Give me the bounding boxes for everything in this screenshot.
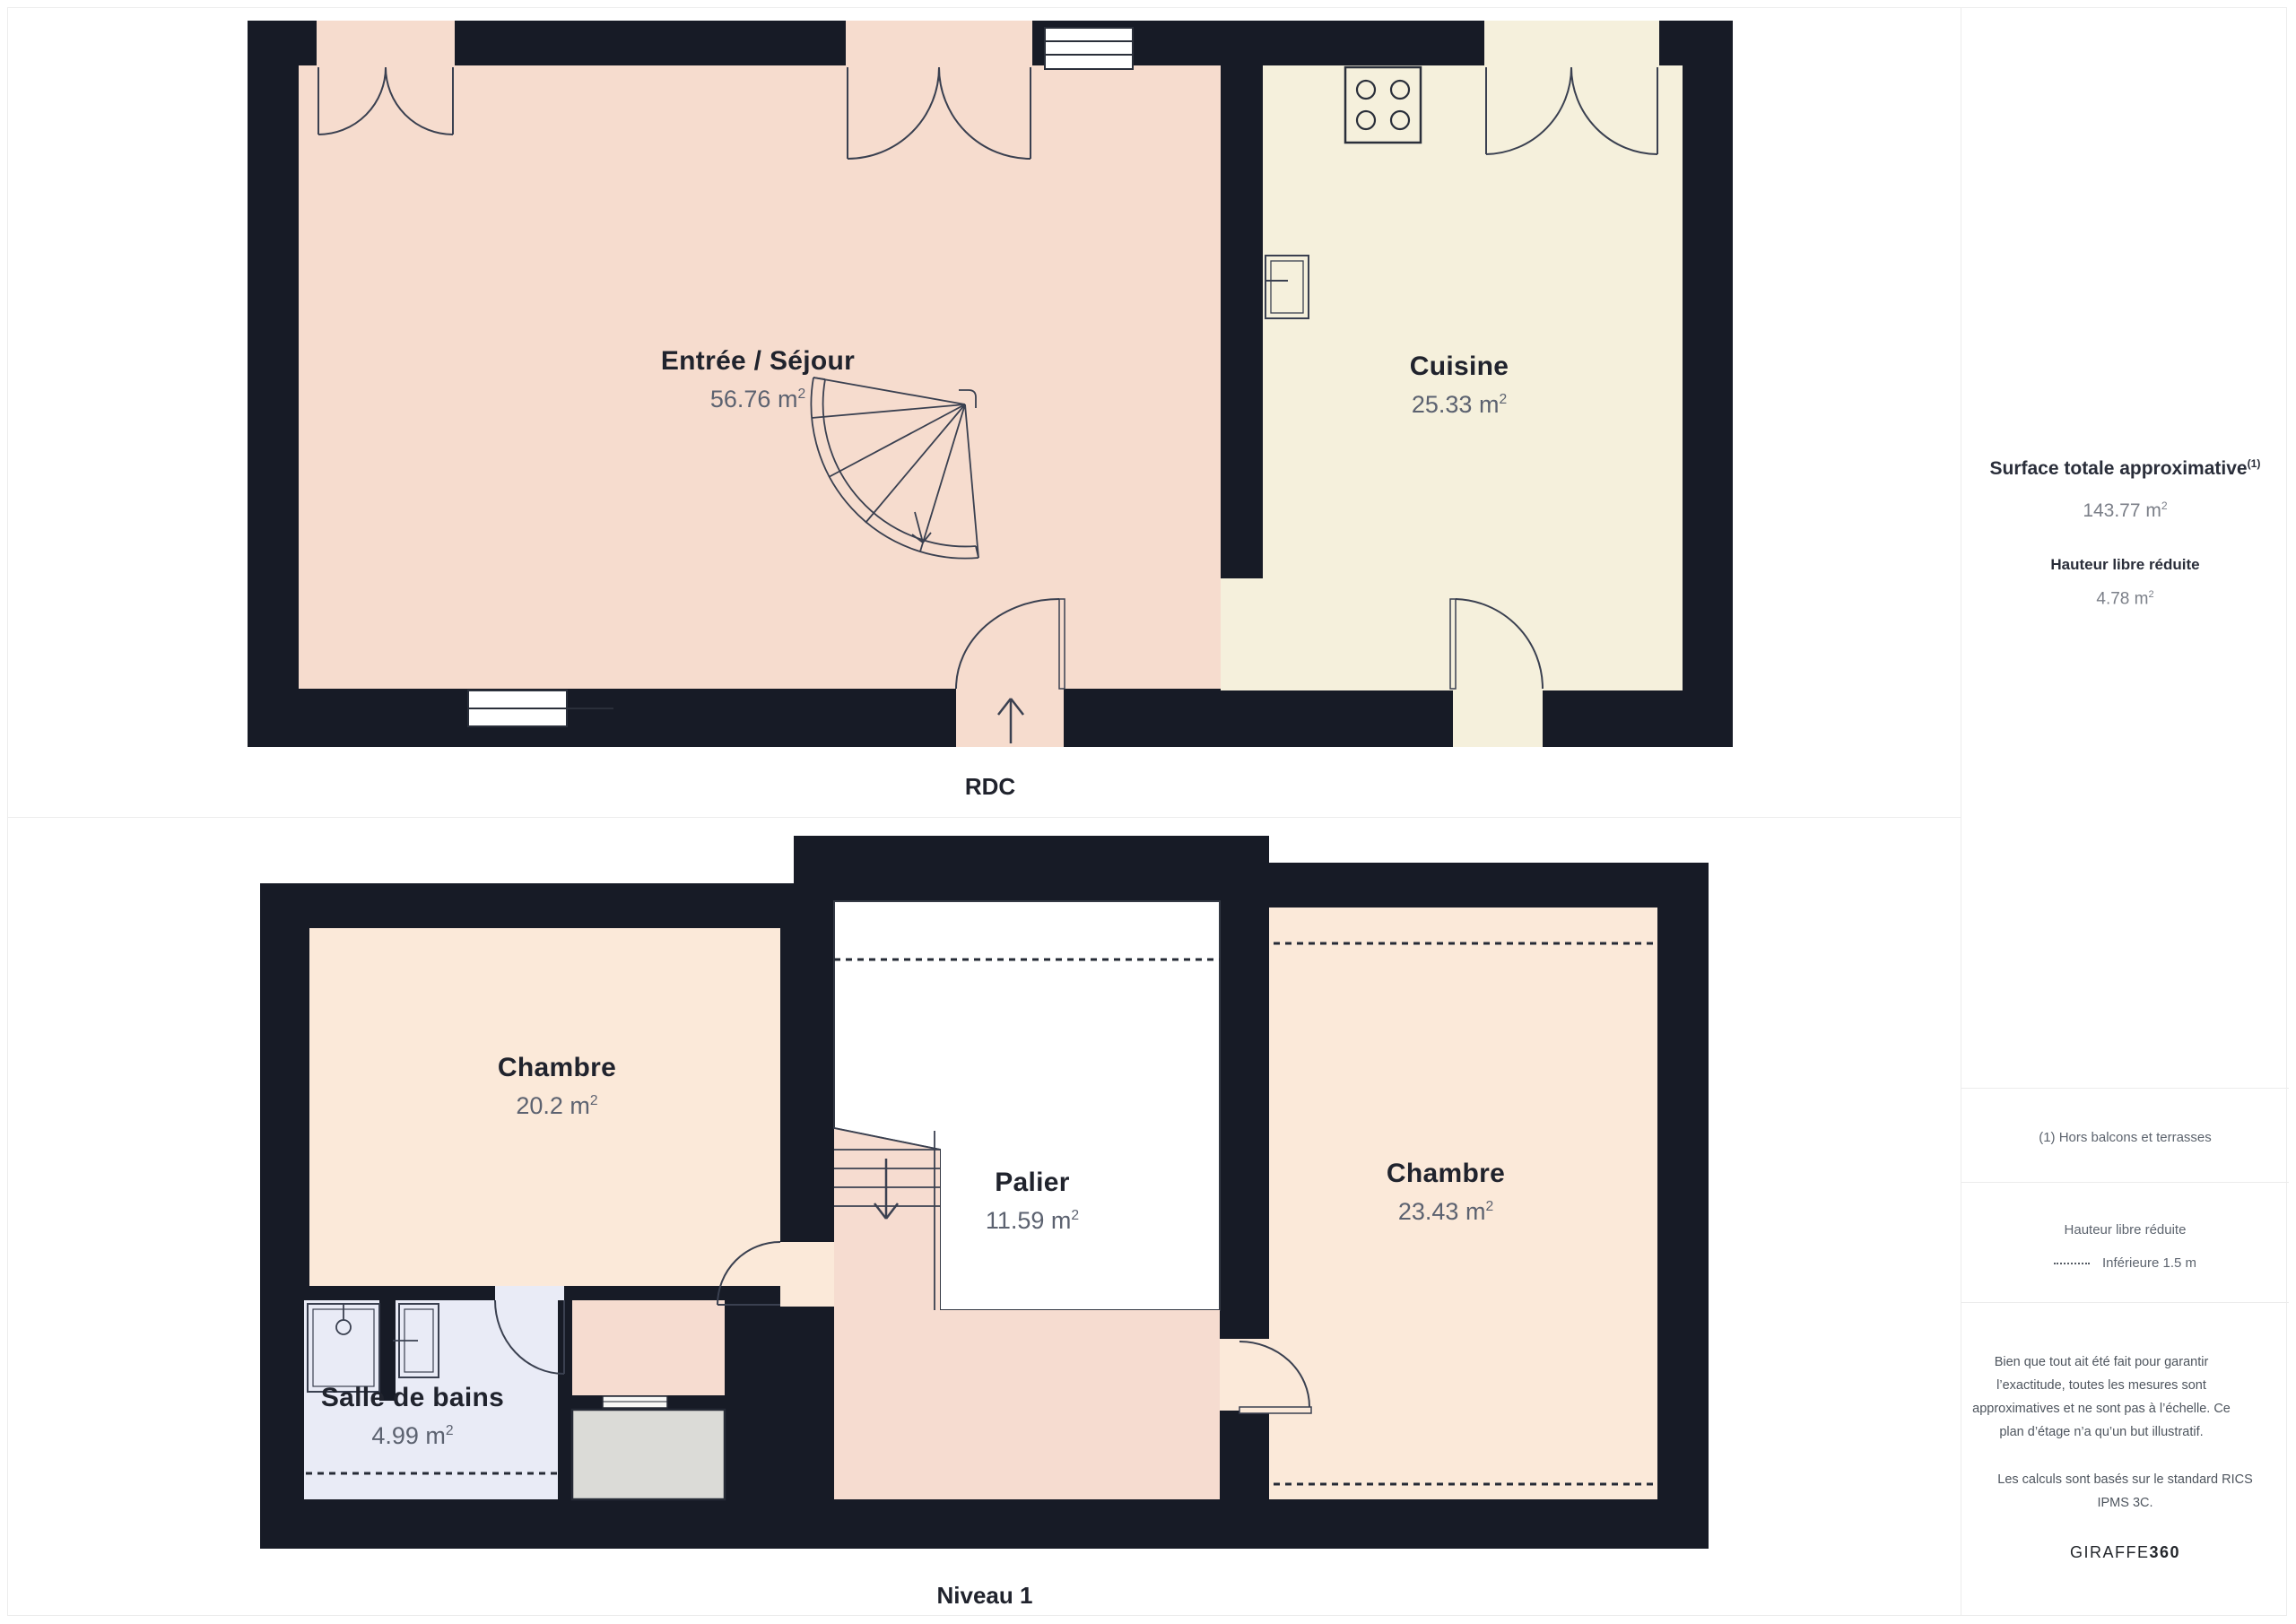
floors-divider — [7, 817, 1961, 818]
door-opening — [317, 21, 455, 67]
surface-total-block: Surface totale approximative(1) 143.77 m… — [1961, 457, 2289, 522]
room-chambre2-floor — [1269, 908, 1657, 1499]
legend-block: Hauteur libre réduite Inférieure 1.5 m — [1961, 1222, 2289, 1271]
door-opening — [1453, 689, 1543, 747]
sidebar-section-divider — [1961, 1088, 2289, 1089]
door-opening — [780, 1242, 834, 1307]
disclaimer-text: Bien que tout ait été fait pour garantir… — [1961, 1350, 2241, 1444]
standard-note-text: Les calculs sont basés sur le standard R… — [1986, 1468, 2266, 1515]
sidebar-section-divider — [1961, 1302, 2289, 1303]
floor-label-niveau1: Niveau 1 — [258, 1582, 1711, 1610]
floor-plan-rdc-drawing — [248, 21, 1733, 747]
room-palier-floor — [834, 1310, 1220, 1499]
storage-room — [572, 1396, 725, 1499]
surface-total-title: Surface totale approximative(1) — [1961, 457, 2289, 480]
door-opening — [1220, 1339, 1269, 1411]
kitchen-fixture-icon — [1265, 256, 1309, 318]
window-icon — [1045, 28, 1133, 69]
reduced-height-title: Hauteur libre réduite — [1961, 556, 2289, 574]
room-entree-sejour-floor — [299, 65, 1221, 689]
legend-row: Inférieure 1.5 m — [1961, 1255, 2289, 1271]
sidebar-section-divider — [1961, 1182, 2289, 1183]
room-salle-de-bains-floor — [304, 1300, 558, 1499]
surface-total-value: 143.77 m2 — [1961, 499, 2289, 522]
disclaimer-block: Bien que tout ait été fait pour garantir… — [1961, 1350, 2289, 1562]
sidebar-footnote: (1) Hors balcons et terrasses — [1961, 1130, 2289, 1145]
floor-plan-niveau1-drawing — [258, 834, 1711, 1551]
legend-item-label: Inférieure 1.5 m — [2102, 1255, 2196, 1271]
room-chambre1-floor — [309, 928, 780, 1286]
room-palier-floor — [572, 1300, 725, 1395]
giraffe360-logo: GIRAFFE360 — [1961, 1543, 2289, 1562]
dotted-line-swatch — [2054, 1263, 2090, 1264]
door-opening — [495, 1286, 564, 1300]
sejour-cuisine-passage — [1221, 578, 1263, 690]
floor-label-rdc: RDC — [248, 773, 1733, 801]
reduced-height-block: Hauteur libre réduite 4.78 m2 — [1961, 556, 2289, 609]
legend-title: Hauteur libre réduite — [1961, 1222, 2289, 1238]
room-cuisine-floor — [1263, 65, 1683, 690]
wall-stub — [379, 1300, 396, 1401]
reduced-height-value: 4.78 m2 — [1961, 589, 2289, 609]
door-opening — [846, 21, 1032, 67]
door-opening — [1484, 21, 1659, 67]
